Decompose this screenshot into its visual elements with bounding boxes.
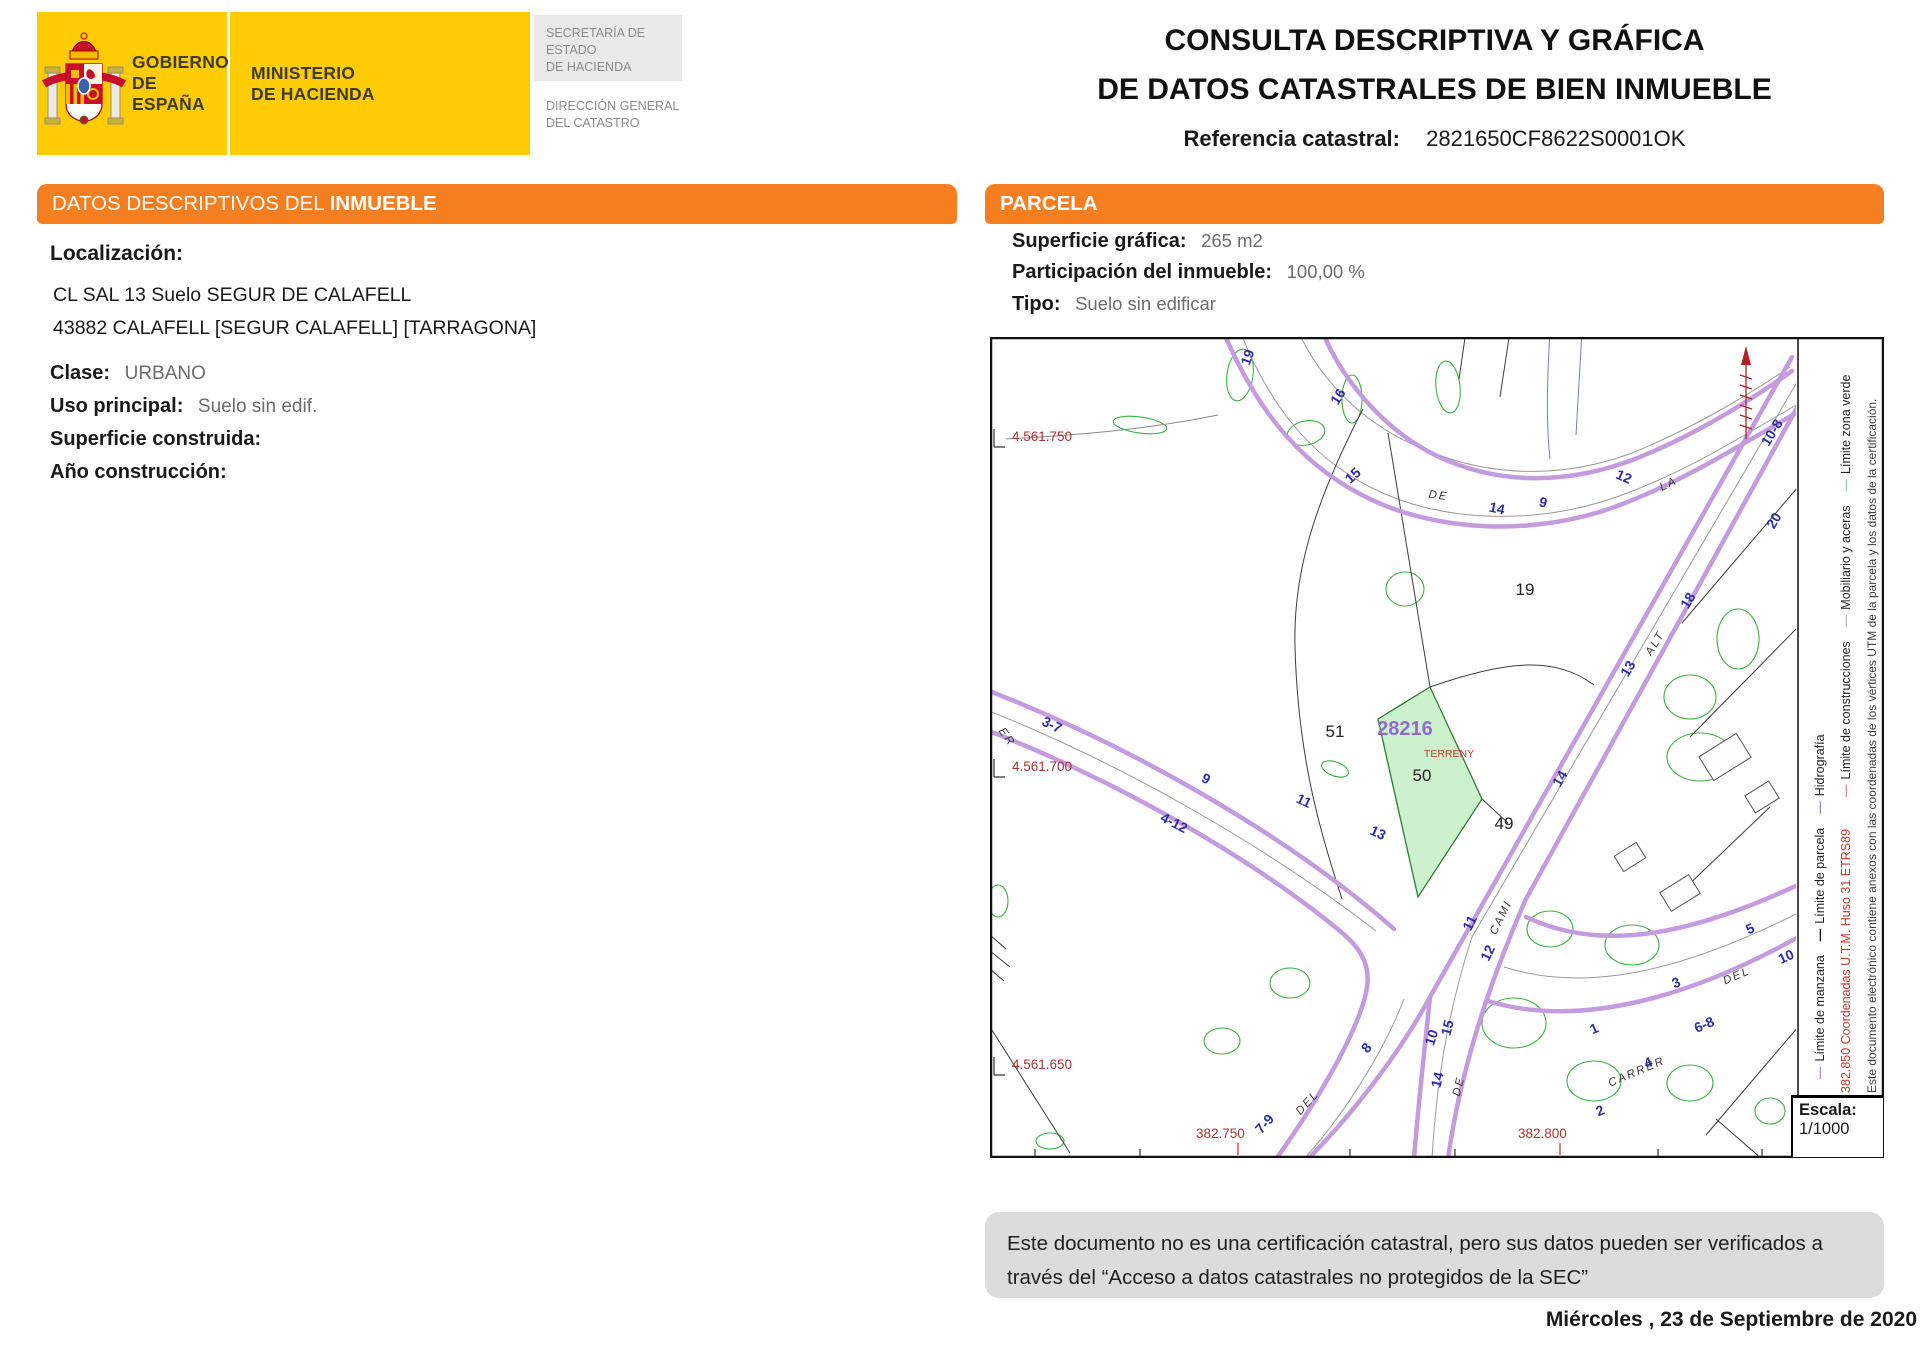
map-label: 12 (1614, 466, 1635, 487)
field-tipo: Tipo: Suelo sin edificar (1012, 293, 1216, 316)
field-uso-principal: Uso principal: Suelo sin edif. (50, 395, 317, 418)
map-label: 9 (1537, 493, 1549, 510)
disclaimer-line-1: Este documento no es una certificación c… (1007, 1227, 1862, 1261)
map-label: 20 (1763, 509, 1785, 531)
map-label: 13 (1368, 822, 1389, 843)
legend-line-details: 382.850 Coordenadas U.T.M. Huso 31 ETRS8… (1838, 375, 1854, 1093)
ministerio-label: MINISTERIO DE HACIENDA (251, 63, 375, 105)
map-label: DE (1428, 489, 1449, 504)
section-header-parcela: PARCELA (985, 184, 1884, 224)
map-label: 3 (1669, 973, 1683, 991)
disclaimer-box: Este documento no es una certificación c… (985, 1212, 1884, 1298)
referencia-catastral: Referencia catastral: 2821650CF8622S0001… (985, 126, 1884, 152)
map-label: 14 (1549, 767, 1571, 789)
legend-item-label: Límite de parcela (1813, 828, 1827, 924)
legend-dash-icon: — (1813, 1067, 1827, 1080)
map-label: 2 (1593, 1101, 1607, 1119)
map-label: 5 (1743, 919, 1757, 937)
map-label: 4.561.700 (1012, 759, 1072, 774)
field-superficie-grafica: Superficie gráfica: 265 m2 (1012, 230, 1263, 253)
gobierno-label: GOBIERNO DE ESPAÑA (132, 52, 229, 115)
map-label: 7-9 (1252, 1111, 1278, 1137)
legend-dash-icon: — (1839, 615, 1853, 628)
cadastral-map: 4.561.7504.561.7004.561.650382.750382.80… (990, 337, 1884, 1158)
legend-dash-icon: — (1813, 929, 1827, 942)
grid-ticks (994, 429, 1762, 1157)
legend-dash-icon: — (1813, 801, 1827, 814)
map-label: 4.561.750 (1012, 429, 1072, 444)
map-label: 1 (1587, 1019, 1601, 1037)
map-label: 50 (1413, 766, 1432, 785)
section-title-bold: INMUEBLE (330, 192, 437, 215)
map-label: 9 (1199, 770, 1213, 788)
scale-box: Escala: 1/1000 (1791, 1095, 1883, 1157)
government-logo: GOBIERNO DE ESPAÑA MINISTERIO DE HACIEND… (37, 12, 530, 155)
field-uso-value: Suelo sin edif. (198, 396, 317, 417)
address-line-2: 43882 CALAFELL [SEGUR CALAFELL] [TARRAGO… (53, 317, 536, 340)
field-ano-label: Año construcción: (50, 461, 227, 483)
map-label: 382.800 (1518, 1126, 1567, 1141)
map-label: 51 (1326, 722, 1345, 741)
map-label: 28216 (1377, 718, 1433, 740)
scale-label: Escala: (1799, 1101, 1883, 1120)
map-label: 14 (1488, 499, 1507, 518)
map-label: 4.561.650 (1012, 1057, 1072, 1072)
legend-item-label: Mobiliario y aceras (1839, 505, 1853, 609)
referencia-value: 2821650CF8622S0001OK (1426, 126, 1685, 151)
map-label: 19 (1516, 580, 1535, 599)
map-legend: —Límite de manzana—Límite de parcela—Hid… (1798, 337, 1884, 1097)
map-label: ALT (1643, 629, 1667, 659)
field-uso-label: Uso principal: (50, 395, 183, 417)
legend-item-label: Límite de construcciones (1839, 641, 1853, 779)
map-label: 3-7 (1040, 713, 1065, 736)
map-label: CARRER (1607, 1055, 1667, 1090)
cadastral-map-drawing: 4.561.7504.561.7004.561.650382.750382.80… (990, 337, 1884, 1158)
field-superficie-label: Superficie construida: (50, 428, 261, 450)
field-participacion: Participación del inmueble: 100,00 % (1012, 261, 1365, 284)
map-label: 8 (1358, 1039, 1375, 1056)
map-label: LA (1658, 475, 1680, 494)
legend-utm-note: 382.850 Coordenadas U.T.M. Huso 31 ETRS8… (1839, 829, 1853, 1093)
ministerio-cell: MINISTERIO DE HACIENDA (230, 12, 530, 155)
document-title: CONSULTA DESCRIPTIVA Y GRÁFICA DE DATOS … (985, 16, 1884, 114)
map-label: 15 (1438, 1018, 1457, 1037)
gobierno-cell: GOBIERNO DE ESPAÑA (37, 12, 230, 155)
scale-value: 1/1000 (1799, 1120, 1883, 1139)
tipo-label: Tipo: (1012, 293, 1061, 315)
disclaimer-line-2: través del “Acceso a datos catastrales n… (1007, 1261, 1862, 1295)
map-label: 382.750 (1196, 1126, 1245, 1141)
map-label: 14 (1428, 1070, 1447, 1089)
legend-item-label: Límite de manzana (1813, 955, 1827, 1061)
superficie-grafica-label: Superficie gráfica: (1012, 230, 1187, 252)
map-label: TERRENY (1424, 748, 1474, 760)
direccion-general-label: DIRECCIÓN GENERAL DEL CATASTRO (534, 98, 694, 132)
tipo-value: Suelo sin edificar (1075, 293, 1216, 314)
field-ano-construccion: Año construcción: (50, 461, 236, 484)
legend-line-limits: —Límite de manzana—Límite de parcela—Hid… (1812, 734, 1828, 1093)
localizacion-label: Localización: (50, 242, 183, 266)
legend-dash-icon: — (1839, 784, 1853, 797)
map-label: 12 (1477, 942, 1498, 963)
document-date: Miércoles , 23 de Septiembre de 2020 (1546, 1308, 1917, 1332)
section-header-datos-descriptivos: DATOS DESCRIPTIVOS DEL INMUEBLE (37, 184, 957, 224)
map-label: 16 (1327, 385, 1349, 407)
field-clase-label: Clase: (50, 362, 110, 384)
map-label: 6-8 (1692, 1013, 1717, 1036)
cadastral-document-page: GOBIERNO DE ESPAÑA MINISTERIO DE HACIEND… (0, 0, 1920, 1356)
legend-note: Este documento electrónico contiene anex… (1864, 399, 1880, 1093)
legend-dash-icon: — (1839, 479, 1853, 492)
legend-item-label: Hidrografía (1813, 734, 1827, 796)
map-label: 4-12 (1158, 809, 1190, 836)
field-superficie-construida: Superficie construida: (50, 428, 270, 451)
map-label: DE (1451, 1075, 1467, 1097)
secretaria-de-estado-label: SECRETARÍA DE ESTADO DE HACIENDA (534, 15, 682, 81)
section-title-regular: DATOS DESCRIPTIVOS DEL (52, 192, 330, 215)
referencia-label: Referencia catastral: (1184, 126, 1400, 151)
spain-coat-of-arms-icon (42, 22, 126, 153)
participacion-label: Participación del inmueble: (1012, 261, 1272, 283)
participacion-value: 100,00 % (1287, 261, 1365, 282)
map-label: 49 (1495, 814, 1514, 833)
superficie-grafica-value: 265 m2 (1201, 230, 1263, 251)
field-clase-value: URBANO (125, 363, 206, 384)
legend-item-label: Límite zona verde (1839, 375, 1853, 474)
address-line-1: CL SAL 13 Suelo SEGUR DE CALAFELL (53, 284, 411, 307)
field-clase: Clase: URBANO (50, 362, 206, 385)
hidrografia-lines (1547, 337, 1582, 459)
map-label: 11 (1294, 790, 1314, 811)
